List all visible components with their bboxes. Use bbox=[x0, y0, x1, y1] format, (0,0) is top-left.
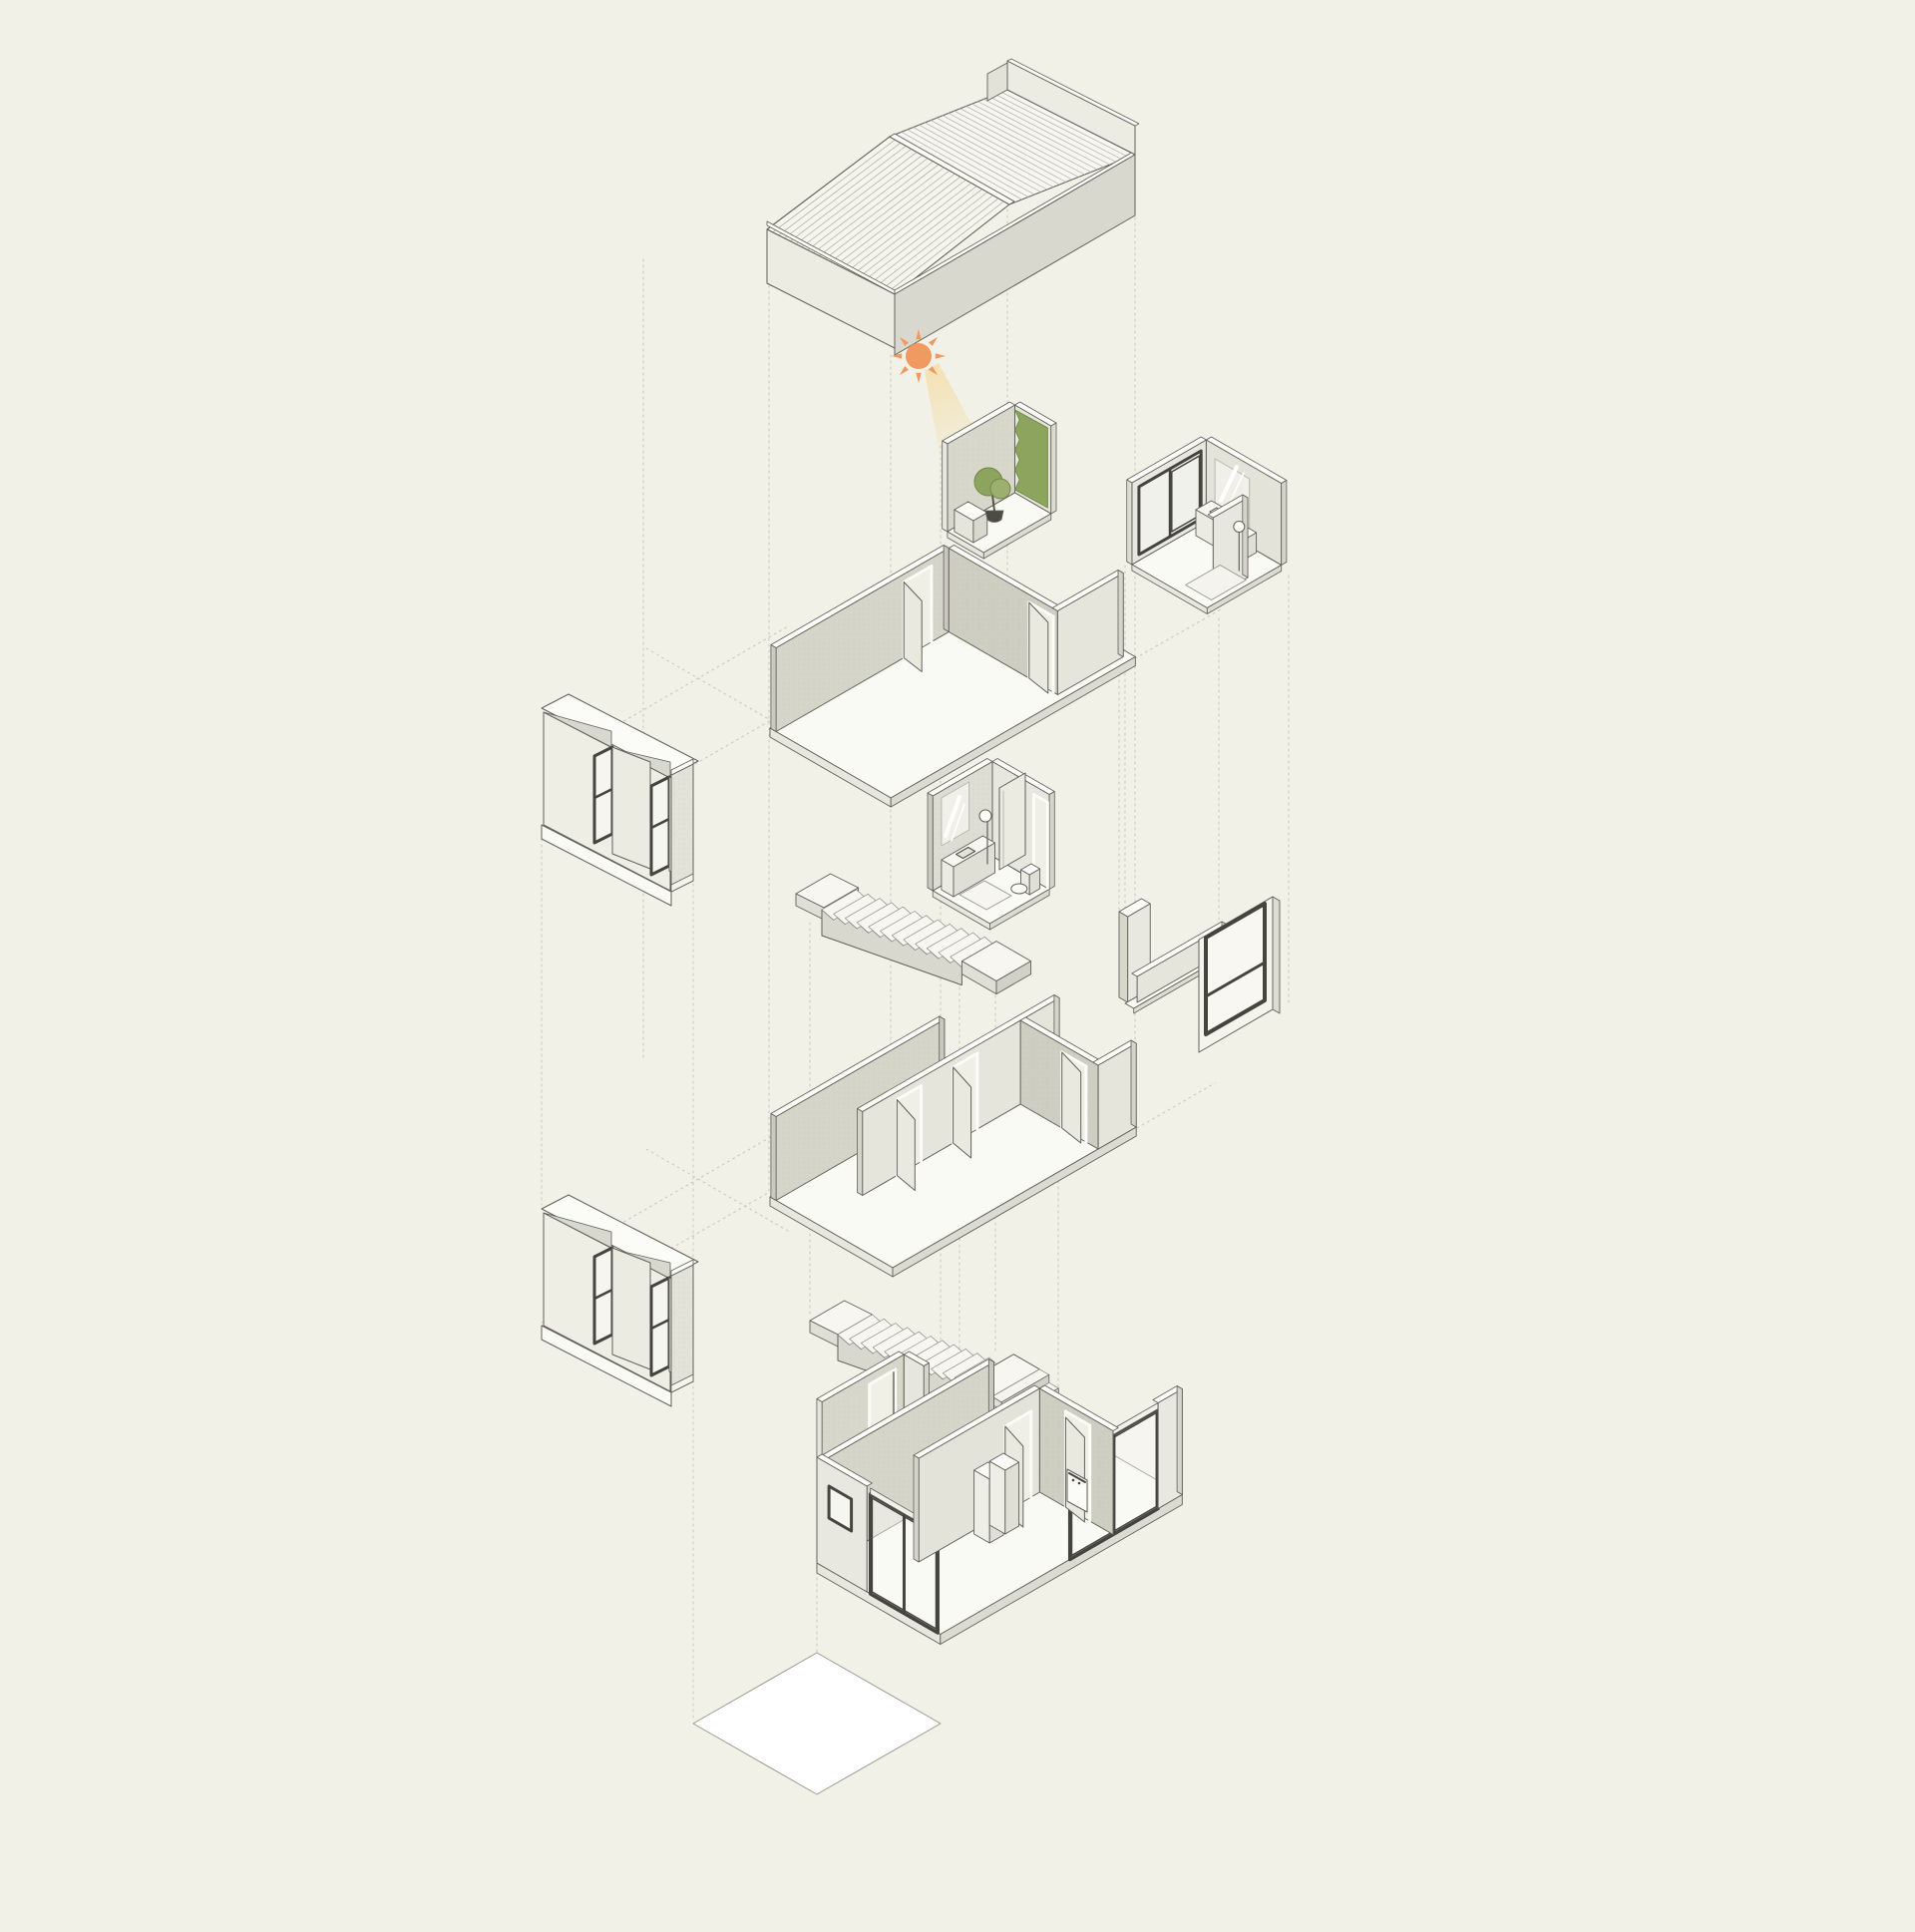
window-bay-upper bbox=[542, 694, 698, 906]
bathroom-module-middle bbox=[928, 759, 1054, 931]
ground-plane bbox=[693, 1653, 941, 1794]
bathroom-module-upper bbox=[1127, 437, 1287, 614]
exploded-axonometric-diagram bbox=[0, 0, 1915, 1932]
window-bay-lower bbox=[542, 1195, 698, 1406]
roof-plate bbox=[767, 59, 1139, 355]
third-floor-walls bbox=[770, 546, 1135, 808]
diagram-canvas bbox=[0, 0, 1915, 1932]
sun-icon bbox=[892, 329, 946, 383]
balcony-door-module bbox=[1119, 897, 1280, 1052]
second-floor-walls bbox=[770, 995, 1136, 1278]
